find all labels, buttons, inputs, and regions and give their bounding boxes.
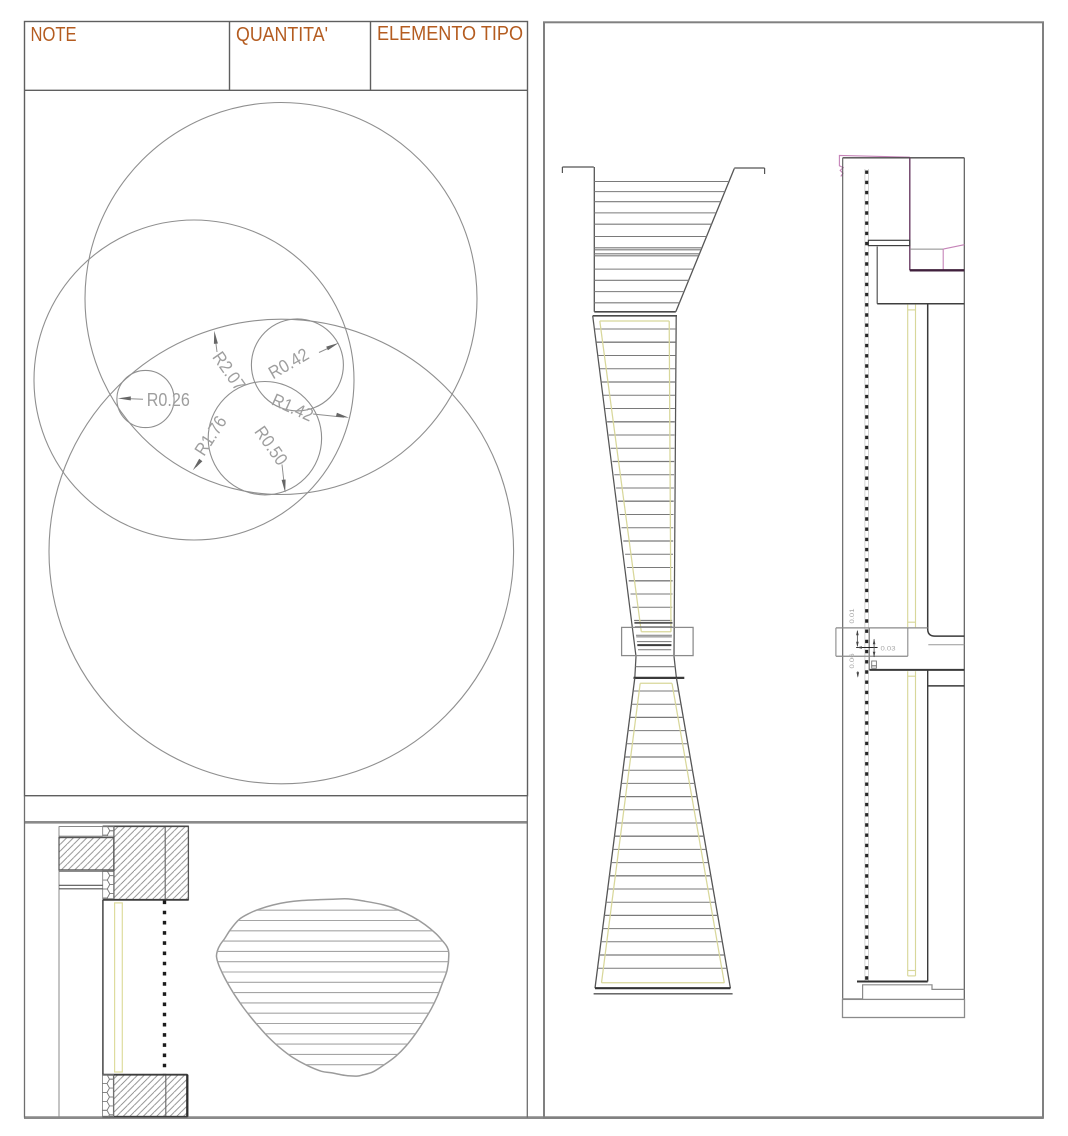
svg-text:QUANTITA': QUANTITA' bbox=[236, 23, 328, 46]
svg-text:ELEMENTO TIPO: ELEMENTO TIPO bbox=[377, 22, 523, 45]
svg-text:R0.26: R0.26 bbox=[147, 390, 190, 410]
svg-text:0.03: 0.03 bbox=[881, 645, 896, 652]
svg-text:0.01: 0.01 bbox=[849, 608, 856, 623]
svg-text:0.06: 0.06 bbox=[849, 653, 856, 668]
svg-text:NOTE: NOTE bbox=[31, 23, 77, 46]
